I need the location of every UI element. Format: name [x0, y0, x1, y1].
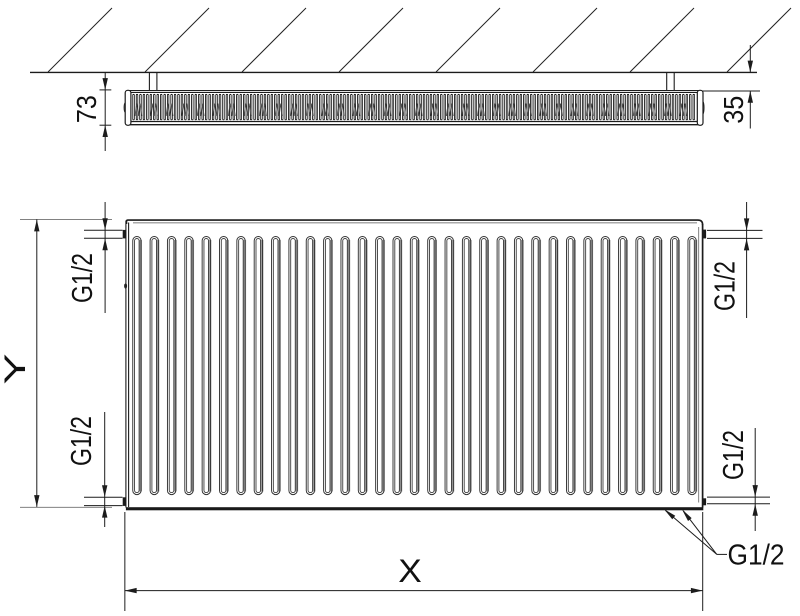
svg-text:G1/2: G1/2	[718, 430, 750, 480]
svg-text:G1/2: G1/2	[66, 416, 98, 466]
svg-text:X: X	[398, 553, 422, 589]
svg-text:G1/2: G1/2	[710, 261, 742, 311]
svg-text:G1/2: G1/2	[67, 253, 99, 303]
svg-text:73: 73	[71, 95, 102, 123]
svg-text:35: 35	[718, 96, 749, 124]
svg-text:Y: Y	[0, 354, 32, 385]
svg-text:G1/2: G1/2	[728, 540, 785, 572]
